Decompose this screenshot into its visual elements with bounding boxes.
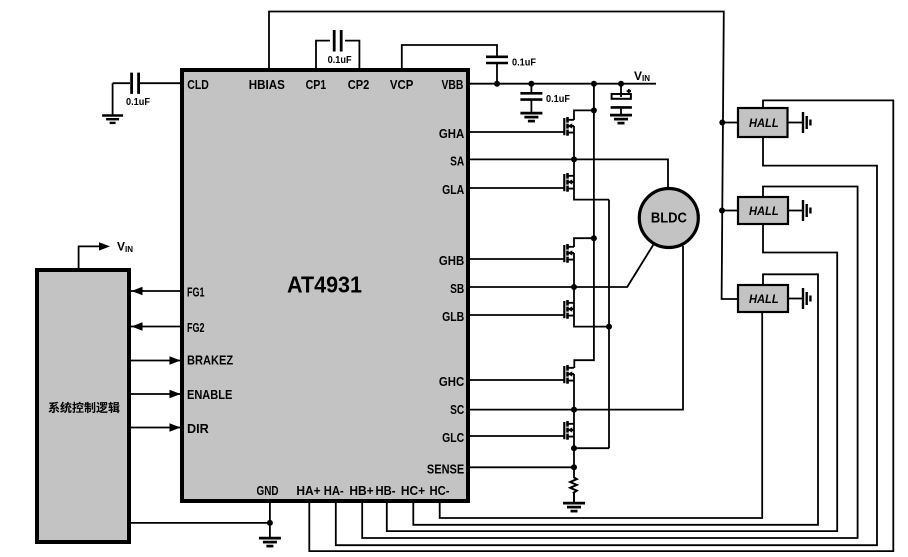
svg-text:HALL: HALL: [749, 204, 779, 218]
svg-text:GLB: GLB: [442, 309, 464, 324]
svg-text:GLC: GLC: [442, 430, 465, 445]
svg-text:VBB: VBB: [441, 77, 463, 92]
svg-text:0.1uF: 0.1uF: [328, 55, 352, 66]
svg-text:GND: GND: [257, 483, 279, 498]
svg-text:BLDC: BLDC: [651, 209, 687, 226]
svg-text:SC: SC: [450, 402, 465, 417]
svg-text:SB: SB: [450, 281, 464, 296]
svg-text:HA+: HA+: [296, 483, 321, 498]
svg-text:SA: SA: [450, 154, 465, 169]
svg-text:0.1uF: 0.1uF: [512, 58, 536, 69]
svg-text:SENSE: SENSE: [427, 461, 465, 476]
svg-text:GHA: GHA: [439, 126, 465, 141]
svg-text:GLA: GLA: [442, 182, 465, 197]
svg-text:HC-: HC-: [430, 483, 450, 498]
svg-text:VCP: VCP: [390, 77, 414, 92]
svg-text:DIR: DIR: [187, 421, 209, 436]
svg-text:AT4931: AT4931: [287, 271, 362, 297]
svg-text:CLD: CLD: [187, 77, 209, 92]
svg-text:FG1: FG1: [187, 285, 205, 300]
svg-text:HB-: HB-: [376, 483, 396, 498]
svg-text:HALL: HALL: [749, 116, 779, 130]
svg-text:GHC: GHC: [439, 374, 465, 389]
svg-text:BRAKEZ: BRAKEZ: [187, 353, 233, 368]
svg-text:HB+: HB+: [349, 483, 374, 498]
svg-text:0.1uF: 0.1uF: [126, 97, 150, 108]
svg-text:HALL: HALL: [749, 292, 779, 306]
svg-text:CP2: CP2: [348, 77, 370, 92]
svg-text:ENABLE: ENABLE: [187, 387, 233, 402]
svg-text:HA-: HA-: [324, 483, 344, 498]
svg-text:CP1: CP1: [306, 77, 327, 92]
svg-text:HC+: HC+: [401, 483, 426, 498]
svg-text:0.1uF: 0.1uF: [546, 94, 570, 105]
svg-text:HBIAS: HBIAS: [249, 77, 285, 92]
svg-text:FG2: FG2: [187, 320, 205, 335]
svg-text:GHB: GHB: [439, 253, 464, 268]
